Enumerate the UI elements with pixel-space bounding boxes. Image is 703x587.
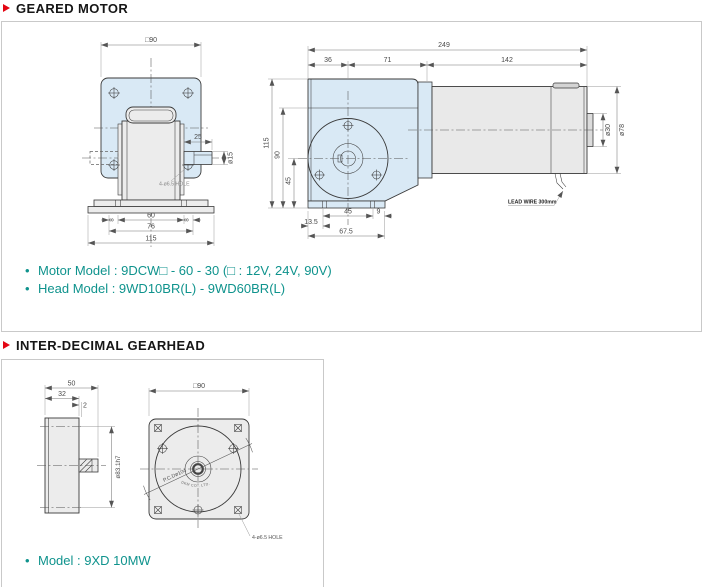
section-header-gearhead: INTER-DECIMAL GEARHEAD (3, 337, 205, 353)
dim-label-shaft-length: 25 (194, 134, 202, 141)
gearhead-housing (308, 79, 432, 208)
head-model-note: •Head Model : 9WD10BR(L) - 9WD60BR(L) (25, 281, 285, 296)
geared-motor-front-view: □90 25 ø15 4-ø6.5 HOLE 8 8 60 76 (60, 28, 260, 258)
red-arrow-bullet-icon (3, 341, 10, 349)
section-title: GEARED MOTOR (16, 1, 128, 16)
dim-label-71: 71 (384, 57, 392, 64)
dim-label-76: 76 (147, 224, 155, 231)
motor-model-text: Motor Model : 9DCW□ - 60 - 30 (□ : 12V, … (38, 263, 332, 278)
hole-callout: 4-ø6.5 HOLE (159, 182, 190, 188)
geared-motor-side-view: LEAD WIRE 300mm 249 36 71 142 115 90 (258, 33, 633, 248)
dim-label-8l: 8 (110, 218, 116, 222)
dim-label-d78: ø78 (619, 124, 626, 136)
gearhead-side-view: 50 32 2 ø83.1h7 (22, 373, 142, 538)
dim-label-50: 50 (68, 381, 76, 388)
dim-label-total: 249 (438, 42, 450, 49)
dim-label-spigot: ø83.1h7 (115, 455, 122, 479)
bullet-icon: • (25, 553, 38, 568)
dim-label-115: 115 (145, 236, 156, 243)
motor-model-note: •Motor Model : 9DCW□ - 60 - 30 (□ : 12V,… (25, 263, 332, 278)
head-model-text: Head Model : 9WD10BR(L) - 9WD60BR(L) (38, 281, 285, 296)
gearhead-model-note: •Model : 9XD 10MW (25, 553, 151, 568)
bullet-icon: • (25, 281, 38, 296)
dim-label-36: 36 (324, 57, 332, 64)
motor-body (432, 83, 593, 174)
gearhead-front-view: P.C.Dø104 DKM CO., LTD. □90 4-ø6.5 HOLE (138, 376, 313, 556)
dim-label-b9: 9 (377, 209, 381, 216)
dim-label-d30: ø30 (605, 124, 612, 136)
dim-label-h90: 90 (275, 151, 282, 159)
dim-label-b675: 67.5 (339, 229, 353, 236)
terminal-bump (553, 83, 579, 88)
dim-label-60: 60 (147, 213, 155, 220)
dim-label-b135: 13.5 (304, 219, 318, 226)
red-arrow-bullet-icon (3, 4, 10, 12)
dim-label-h115: 115 (264, 137, 271, 148)
dim-label-width: □90 (145, 37, 157, 44)
dim-label-8r: 8 (185, 218, 191, 222)
output-shaft (184, 152, 212, 165)
section-header-geared-motor: GEARED MOTOR (3, 0, 128, 16)
hole-callout: 4-ø6.5 HOLE (252, 535, 283, 541)
section-title: INTER-DECIMAL GEARHEAD (16, 338, 205, 353)
datasheet-page: GEARED MOTOR (0, 0, 703, 587)
lead-wires: LEAD WIRE 300mm (508, 174, 566, 206)
base-foot (88, 200, 214, 213)
dim-label-width: □90 (193, 383, 205, 390)
bullet-icon: • (25, 263, 38, 278)
dim-label-b45: 45 (344, 209, 352, 216)
lead-wire-label: LEAD WIRE 300mm (508, 200, 557, 206)
dim-label-2: 2 (83, 403, 87, 410)
dim-label-142: 142 (501, 57, 513, 64)
dim-label-32: 32 (58, 391, 66, 398)
dim-label-shaft-dia: ø15 (228, 152, 235, 164)
gearhead-model-text: Model : 9XD 10MW (38, 553, 151, 568)
dim-label-h45: 45 (286, 177, 293, 185)
